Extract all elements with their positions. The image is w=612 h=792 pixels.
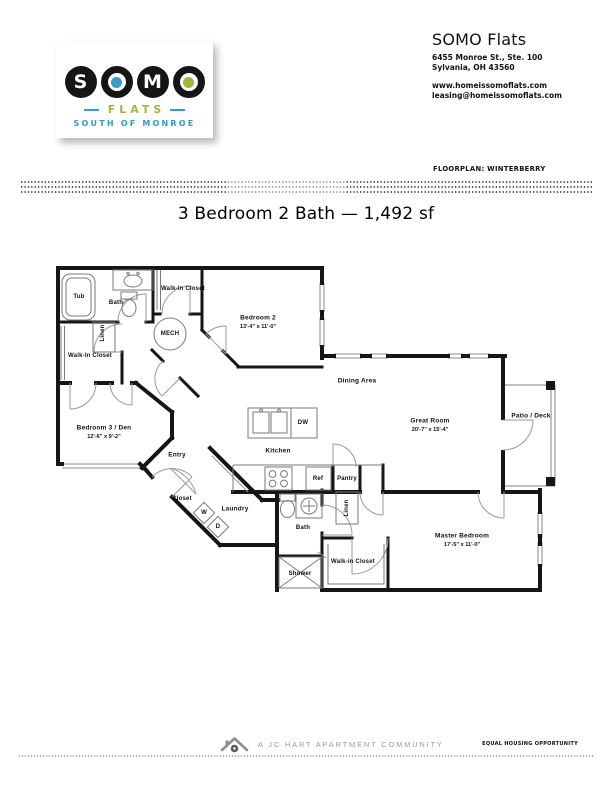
house-icon <box>220 733 250 755</box>
interior-walls <box>58 268 388 590</box>
toilet-upper <box>121 292 137 299</box>
flyer-page: S M FLATS SOUTH OF MONROE SOMO Flats 645… <box>0 0 612 792</box>
mech-unit <box>154 318 186 350</box>
linen-closet-upper <box>93 322 115 352</box>
patio-structure <box>503 381 555 486</box>
wic-upper-shelves <box>157 270 161 310</box>
community-label: A JC HART APARTMENT COMMUNITY <box>258 740 444 749</box>
stove <box>265 467 292 490</box>
equal-housing-label: EQUAL HOUSING OPPORTUNITY <box>482 741 578 747</box>
fixtures <box>61 270 384 588</box>
refrigerator <box>306 467 331 490</box>
footer-dotted-rule <box>18 755 594 757</box>
toilet-lower <box>280 494 295 501</box>
windows <box>62 283 542 566</box>
wic-left-shelves <box>61 326 65 380</box>
floor-plan <box>0 0 612 792</box>
jchart-brand: A JC HART APARTMENT COMMUNITY <box>220 733 444 755</box>
doors <box>70 286 533 574</box>
wic-master-shelves <box>328 544 384 584</box>
